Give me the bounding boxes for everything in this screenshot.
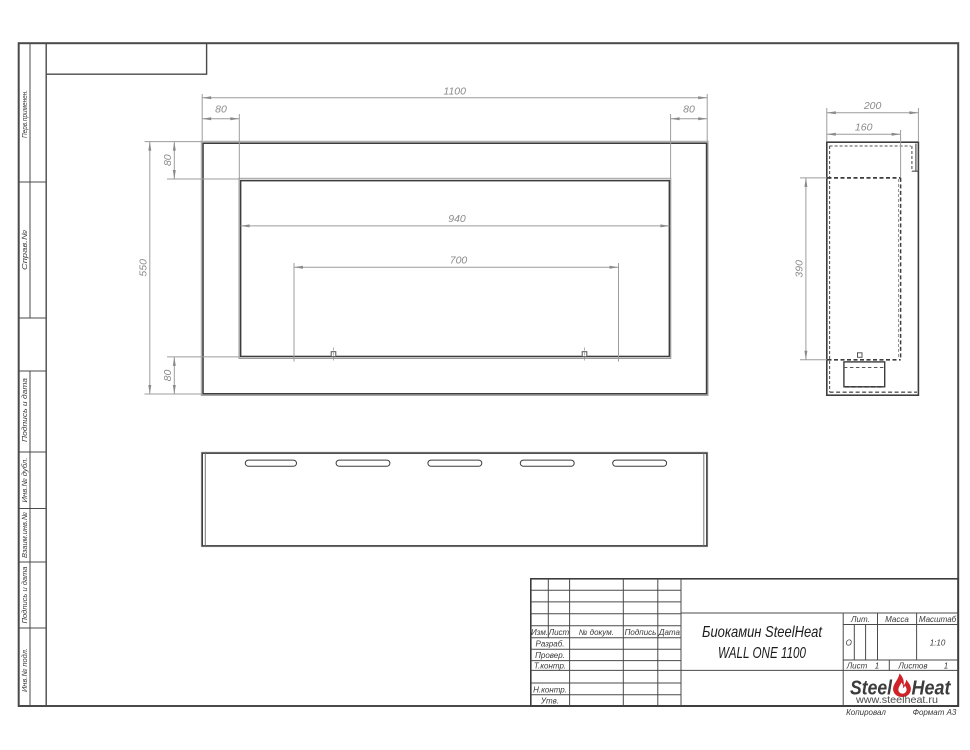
svg-text:№ докум.: № докум. [579, 628, 614, 637]
svg-text:200: 200 [863, 100, 882, 112]
svg-text:80: 80 [162, 154, 174, 166]
svg-text:940: 940 [448, 213, 466, 225]
svg-text:390: 390 [793, 260, 805, 278]
svg-text:700: 700 [450, 254, 468, 266]
svg-text:Взаим.инв.№: Взаим.инв.№ [20, 512, 29, 558]
svg-text:Масса: Масса [885, 615, 909, 624]
svg-text:Н.контр.: Н.контр. [533, 685, 567, 694]
svg-text:Разраб.: Разраб. [536, 640, 565, 649]
svg-text:Листов: Листов [897, 661, 927, 670]
svg-text:80: 80 [215, 104, 227, 116]
svg-text:Утв.: Утв. [540, 697, 559, 706]
svg-text:www.steelheat.ru: www.steelheat.ru [855, 694, 938, 706]
svg-text:Лит.: Лит. [850, 615, 870, 624]
svg-text:1100: 1100 [443, 86, 466, 98]
svg-text:Формат А3: Формат А3 [913, 708, 957, 717]
svg-text:Дата: Дата [658, 628, 681, 637]
svg-text:Перв.применен.: Перв.применен. [20, 90, 29, 138]
svg-text:О: О [846, 639, 852, 648]
svg-text:Инв.№ подл.: Инв.№ подл. [20, 648, 29, 692]
svg-text:Лист: Лист [548, 628, 570, 637]
svg-text:Провер.: Провер. [535, 651, 565, 660]
svg-text:80: 80 [162, 370, 174, 382]
svg-text:550: 550 [138, 259, 150, 277]
svg-text:160: 160 [855, 121, 873, 133]
svg-text:80: 80 [683, 104, 695, 116]
svg-text:Подпись и дата: Подпись и дата [20, 378, 29, 442]
svg-text:Инв.№ дубл.: Инв.№ дубл. [20, 458, 29, 503]
svg-text:Биокамин SteelHeat: Биокамин SteelHeat [702, 624, 822, 641]
svg-text:WALL ONE 1100: WALL ONE 1100 [718, 645, 806, 662]
svg-text:Подпись: Подпись [625, 628, 657, 637]
svg-text:Справ.№: Справ.№ [20, 230, 29, 270]
svg-text:1:10: 1:10 [930, 639, 946, 648]
svg-text:Т.контр.: Т.контр. [534, 661, 566, 670]
svg-text:Лист: Лист [846, 661, 868, 670]
svg-text:Изм.: Изм. [531, 628, 548, 637]
svg-text:Подпись и дата: Подпись и дата [20, 567, 29, 624]
svg-text:1: 1 [944, 661, 948, 670]
svg-text:Копировал: Копировал [846, 708, 886, 717]
svg-text:Масштаб: Масштаб [919, 615, 957, 624]
svg-text:1: 1 [875, 661, 879, 670]
